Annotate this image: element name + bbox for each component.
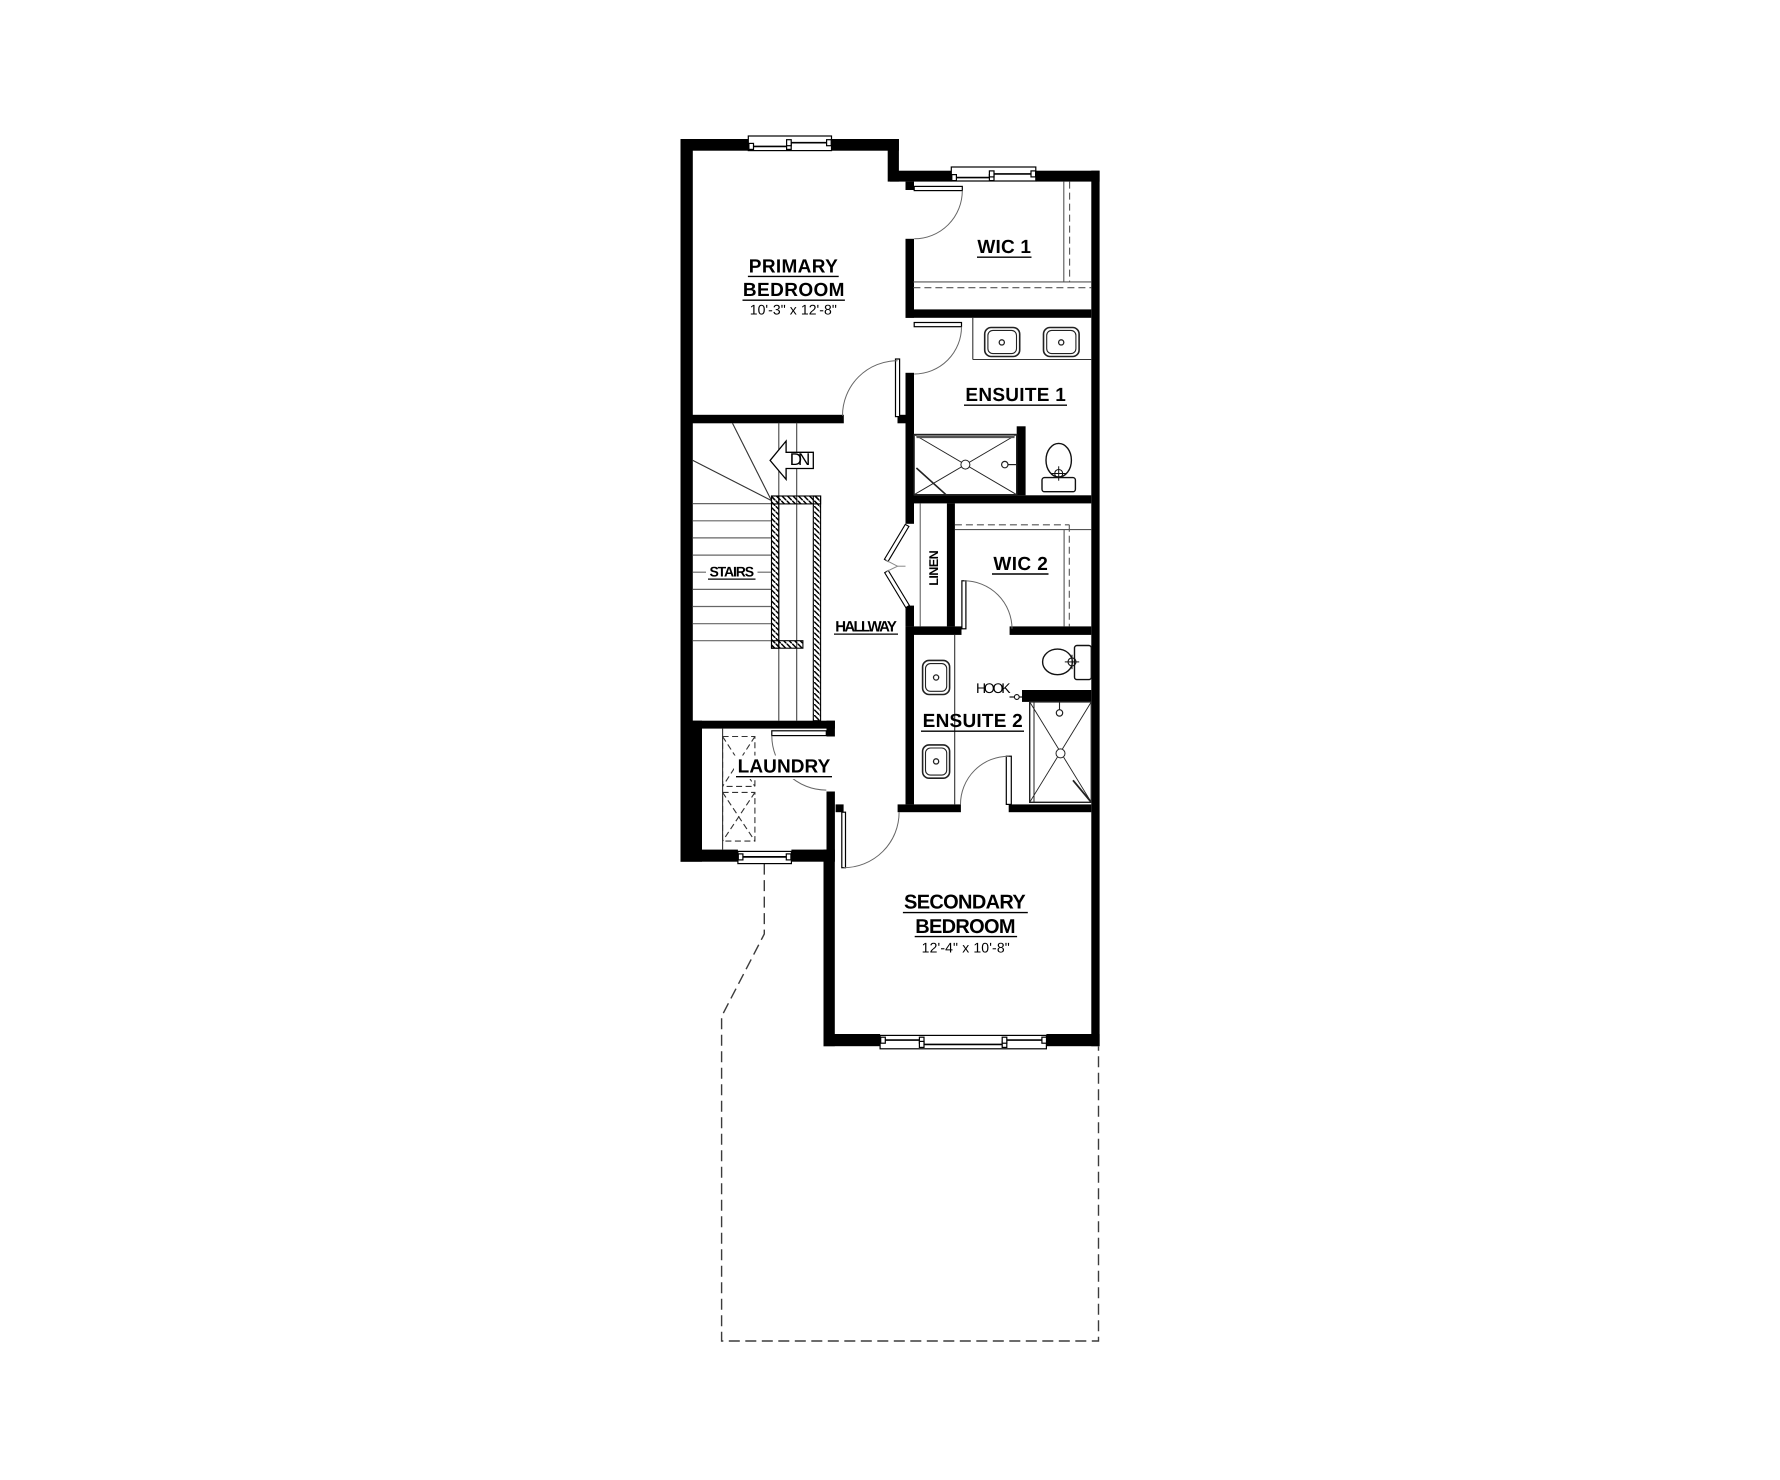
svg-text:BEDROOM: BEDROOM xyxy=(915,916,1015,938)
svg-text:HOOK: HOOK xyxy=(976,680,1011,696)
svg-text:LINEN: LINEN xyxy=(927,550,941,586)
svg-text:WIC 1: WIC 1 xyxy=(977,237,1031,258)
svg-text:ENSUITE 2: ENSUITE 2 xyxy=(923,711,1023,732)
svg-text:SECONDARY: SECONDARY xyxy=(904,891,1026,913)
svg-text:WIC 2: WIC 2 xyxy=(993,554,1048,575)
svg-text:12'-4" x 10'-8": 12'-4" x 10'-8" xyxy=(922,940,1010,956)
svg-text:ENSUITE 1: ENSUITE 1 xyxy=(965,385,1066,406)
svg-text:STAIRS: STAIRS xyxy=(709,564,754,580)
svg-text:PRIMARY: PRIMARY xyxy=(749,256,838,277)
svg-text:DN: DN xyxy=(790,450,811,469)
svg-text:LAUNDRY: LAUNDRY xyxy=(738,756,831,777)
svg-text:HALLWAY: HALLWAY xyxy=(835,618,897,635)
svg-text:BEDROOM: BEDROOM xyxy=(743,280,845,301)
svg-text:10'-3" x 12'-8": 10'-3" x 12'-8" xyxy=(750,302,837,318)
